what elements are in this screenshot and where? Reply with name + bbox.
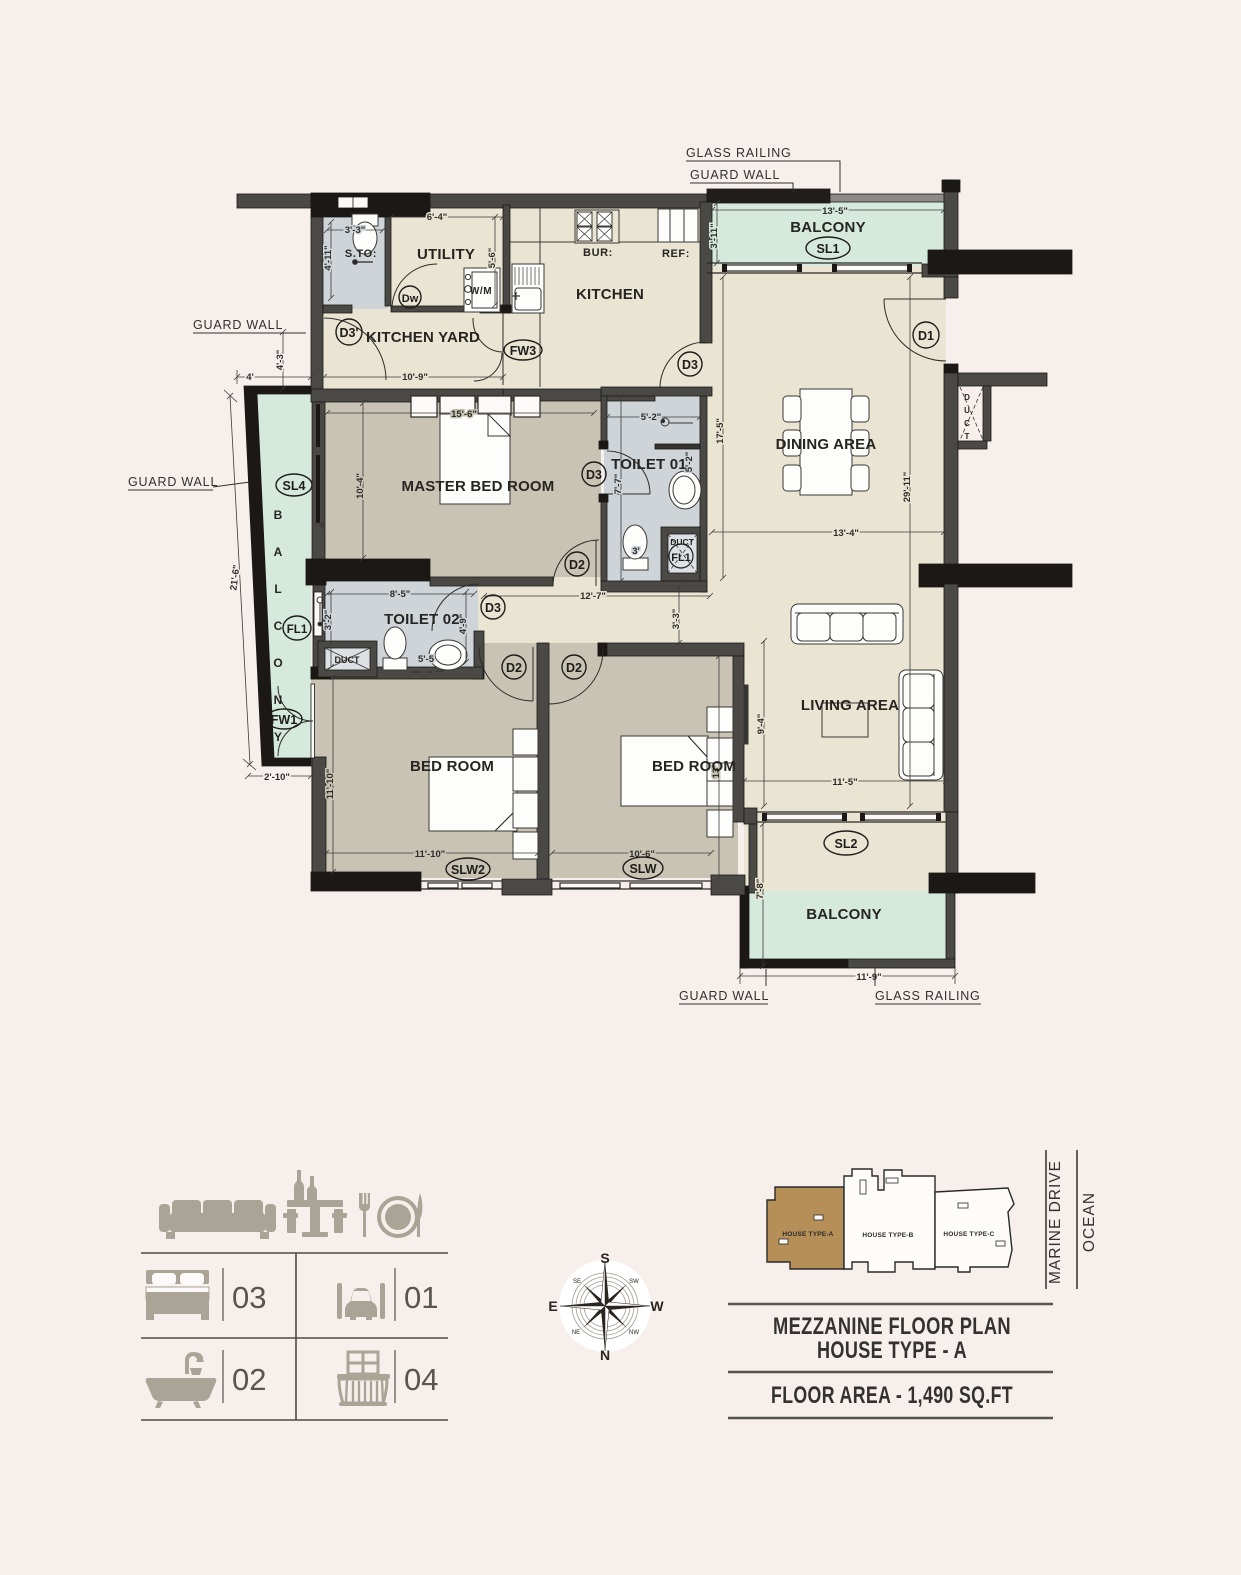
svg-text:N: N (274, 693, 283, 707)
svg-text:13'-5": 13'-5" (822, 206, 848, 217)
svg-text:NW: NW (629, 1330, 639, 1336)
svg-text:D1: D1 (918, 329, 934, 343)
svg-text:TOILET 02: TOILET 02 (384, 611, 460, 628)
svg-text:13'-4": 13'-4" (833, 528, 859, 539)
svg-text:KITCHEN: KITCHEN (576, 286, 644, 303)
svg-text:S: S (600, 1250, 609, 1266)
svg-text:HOUSE TYPE-A: HOUSE TYPE-A (782, 1231, 833, 1238)
svg-text:01: 01 (404, 1280, 438, 1315)
svg-text:UTILITY: UTILITY (417, 246, 475, 263)
svg-text:3'-2": 3'-2" (323, 610, 334, 631)
svg-text:D3': D3' (340, 326, 359, 340)
svg-text:L: L (274, 582, 281, 596)
svg-text:10'-9": 10'-9" (402, 372, 428, 383)
svg-text:SL1: SL1 (817, 242, 840, 256)
svg-text:DUCT: DUCT (670, 537, 694, 547)
svg-text:MEZZANINE FLOOR PLAN: MEZZANINE FLOOR PLAN (773, 1313, 1011, 1340)
svg-text:4'-11": 4'-11" (323, 245, 334, 270)
svg-text:HOUSE TYPE-B: HOUSE TYPE-B (862, 1232, 913, 1239)
svg-text:FW1: FW1 (271, 713, 297, 727)
svg-text:OCEAN: OCEAN (1081, 1192, 1098, 1252)
svg-text:W/M: W/M (470, 286, 492, 297)
svg-text:03: 03 (232, 1280, 266, 1315)
svg-text:SL4: SL4 (283, 479, 306, 493)
svg-text:SL2: SL2 (835, 837, 858, 851)
svg-text:Dw: Dw (402, 293, 419, 305)
svg-text:SLW: SLW (629, 862, 656, 876)
svg-text:U: U (964, 406, 970, 415)
svg-text:MARINE DRIVE: MARINE DRIVE (1047, 1160, 1064, 1284)
svg-text:BED ROOM: BED ROOM (652, 758, 736, 775)
svg-text:29'-11": 29'-11" (902, 472, 913, 503)
svg-text:9'-4": 9'-4" (756, 714, 767, 735)
svg-text:4': 4' (246, 372, 254, 383)
svg-text:GUARD WALL: GUARD WALL (679, 989, 769, 1003)
svg-text:3': 3' (632, 546, 640, 557)
svg-text:A: A (274, 545, 283, 559)
svg-text:5'-6": 5'-6" (487, 248, 498, 269)
svg-text:D: D (964, 393, 970, 402)
svg-text:8'-5": 8'-5" (390, 589, 411, 600)
svg-text:O: O (273, 656, 282, 670)
svg-text:NE: NE (572, 1330, 580, 1336)
svg-text:BUR:: BUR: (583, 247, 613, 259)
svg-text:7'-7": 7'-7" (613, 474, 624, 495)
svg-text:C: C (274, 619, 283, 633)
svg-text:11'-5": 11'-5" (832, 777, 857, 788)
svg-text:MASTER BED ROOM: MASTER BED ROOM (402, 478, 555, 495)
svg-text:D3: D3 (682, 358, 698, 372)
svg-text:5'-5: 5'-5 (418, 654, 435, 665)
svg-text:E: E (548, 1298, 557, 1314)
svg-text:S.TO:: S.TO: (345, 248, 377, 260)
svg-text:6'-4": 6'-4" (427, 212, 448, 223)
svg-text:DUCT: DUCT (335, 655, 360, 665)
svg-text:17'-5": 17'-5" (715, 418, 726, 444)
svg-text:10'-4": 10'-4" (355, 473, 366, 499)
svg-text:FW3: FW3 (510, 344, 536, 358)
svg-text:GLASS RAILING: GLASS RAILING (686, 146, 792, 160)
svg-text:TOILET 01: TOILET 01 (611, 456, 687, 473)
svg-text:D3: D3 (586, 468, 602, 482)
svg-text:W: W (650, 1298, 664, 1314)
svg-text:3'-11": 3'-11" (709, 223, 720, 248)
svg-text:REF:: REF: (662, 248, 690, 260)
svg-text:FLOOR AREA - 1,490 SQ.FT: FLOOR AREA - 1,490 SQ.FT (771, 1382, 1013, 1409)
svg-text:02: 02 (232, 1362, 266, 1397)
svg-text:3'-3": 3'-3" (671, 609, 682, 630)
svg-text:D2: D2 (569, 558, 585, 572)
svg-text:4'-3": 4'-3" (275, 350, 286, 371)
svg-text:7'-8": 7'-8" (755, 879, 766, 900)
svg-text:BALCONY: BALCONY (790, 219, 866, 236)
svg-text:KITCHEN YARD: KITCHEN YARD (366, 329, 480, 346)
svg-text:GUARD WALL: GUARD WALL (128, 475, 218, 489)
svg-text:2'-10": 2'-10" (264, 772, 290, 783)
svg-text:04: 04 (404, 1362, 438, 1397)
svg-text:D2: D2 (566, 661, 582, 675)
svg-text:SLW2: SLW2 (451, 863, 485, 877)
svg-text:LIVING AREA: LIVING AREA (801, 697, 899, 714)
svg-text:GUARD WALL: GUARD WALL (193, 318, 283, 332)
svg-text:BED ROOM: BED ROOM (410, 758, 494, 775)
svg-text:BALCONY: BALCONY (806, 906, 882, 923)
svg-text:FL1: FL1 (671, 552, 691, 564)
svg-text:D2: D2 (506, 661, 522, 675)
svg-text:15'-6": 15'-6" (451, 409, 477, 420)
svg-text:C: C (964, 419, 970, 428)
svg-text:11'-10": 11'-10" (325, 769, 336, 800)
svg-text:11'-9": 11'-9" (856, 972, 881, 983)
svg-text:HOUSE TYPE - A: HOUSE TYPE - A (817, 1337, 967, 1364)
svg-text:GUARD WALL: GUARD WALL (690, 168, 780, 182)
svg-text:FL1: FL1 (287, 624, 308, 636)
svg-text:11'-10": 11'-10" (415, 849, 446, 860)
svg-text:N: N (600, 1347, 610, 1363)
svg-text:DINING AREA: DINING AREA (776, 436, 877, 453)
svg-text:Y: Y (274, 730, 282, 744)
svg-text:B: B (274, 508, 283, 522)
svg-text:HOUSE TYPE-C: HOUSE TYPE-C (943, 1231, 994, 1238)
svg-text:12'-7": 12'-7" (580, 591, 606, 602)
svg-text:3'-3": 3'-3" (345, 225, 366, 236)
svg-text:GLASS RAILING: GLASS RAILING (875, 989, 981, 1003)
svg-text:T: T (965, 432, 970, 441)
svg-text:5'-2": 5'-2" (641, 412, 662, 423)
svg-text:SW: SW (629, 1279, 639, 1285)
svg-text:D3: D3 (485, 601, 501, 615)
svg-text:SE: SE (573, 1279, 581, 1285)
